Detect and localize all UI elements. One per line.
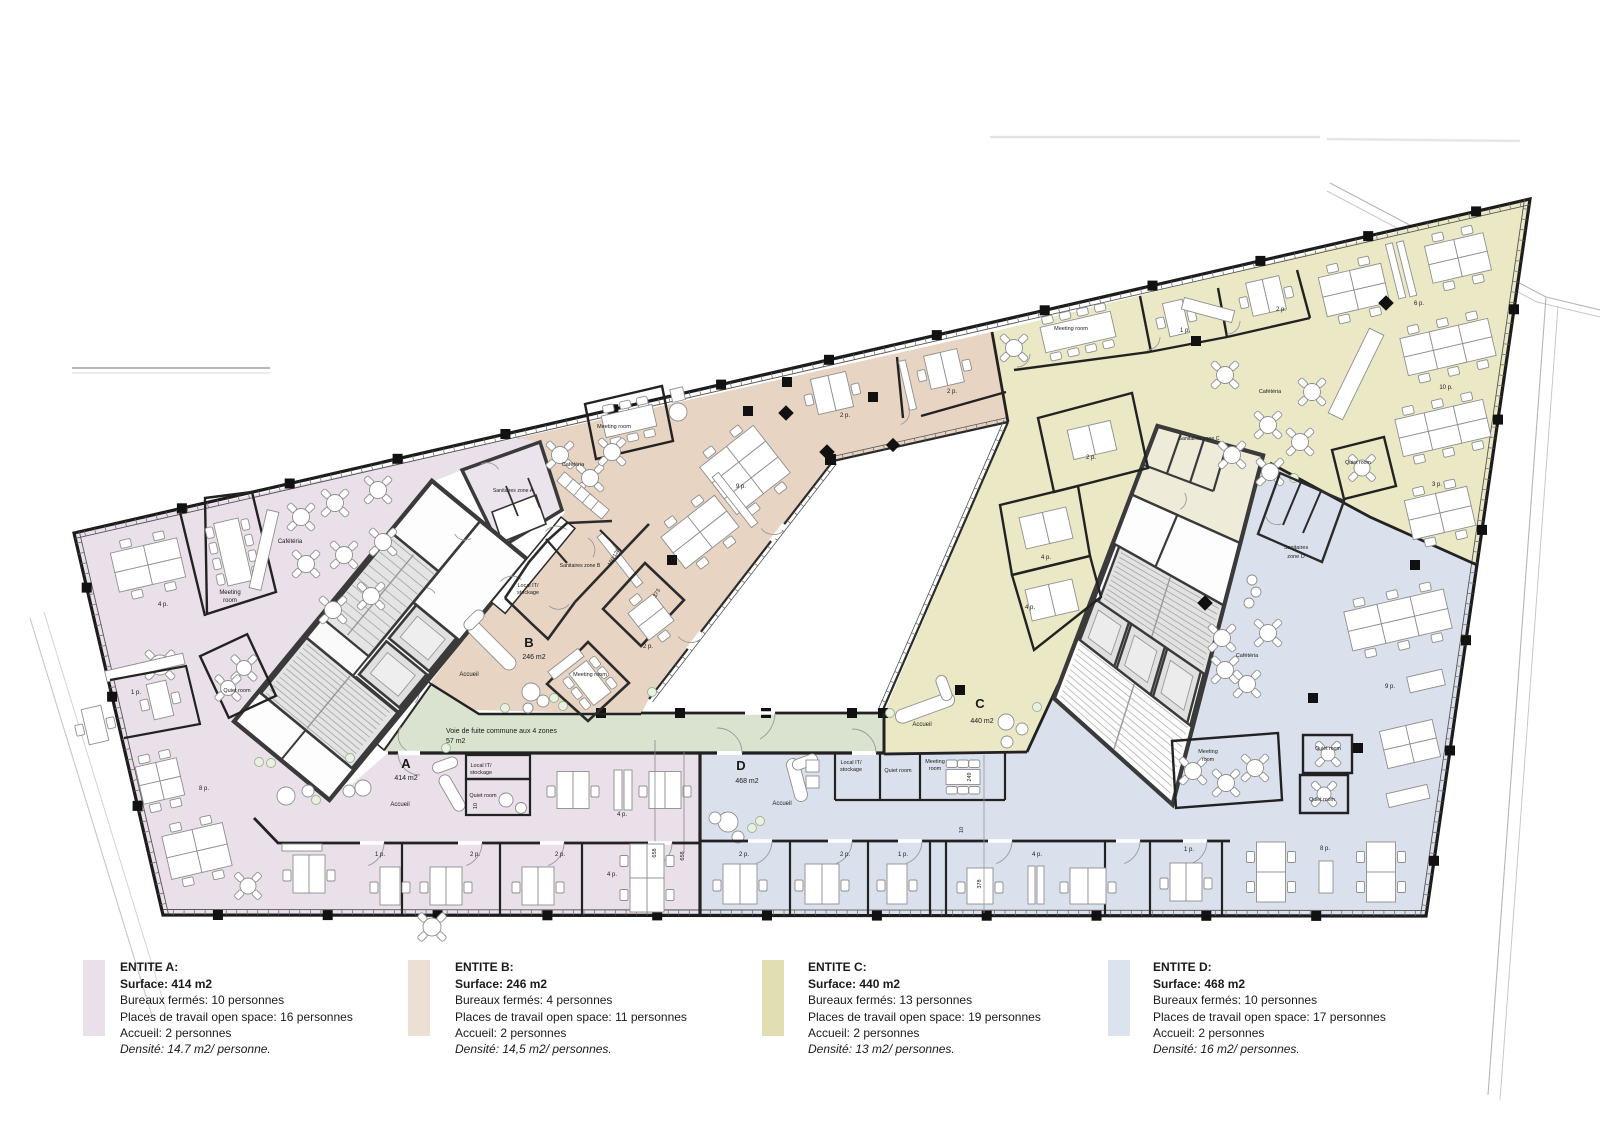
svg-text:1 p.: 1 p.	[131, 690, 141, 696]
svg-text:Places de travail open space:: Places de travail open space: 19 personn…	[808, 1010, 1041, 1024]
svg-text:Meeting room: Meeting room	[573, 672, 607, 678]
svg-text:4 p.: 4 p.	[607, 872, 617, 878]
svg-text:9 p.: 9 p.	[1385, 684, 1395, 690]
svg-text:Surface: 414 m2: Surface: 414 m2	[120, 977, 212, 991]
svg-text:Places de travail open space:: Places de travail open space: 11 personn…	[455, 1010, 687, 1024]
svg-text:Meeting room: Meeting room	[1054, 326, 1088, 332]
svg-text:Quiet room: Quiet room	[1345, 460, 1371, 466]
svg-text:Surface: 440 m2: Surface: 440 m2	[808, 977, 900, 991]
svg-text:4 p.: 4 p.	[158, 602, 168, 608]
svg-text:Accueil: Accueil	[390, 802, 409, 808]
svg-text:Accueil: 2 personnes: Accueil: 2 personnes	[808, 1026, 919, 1040]
svg-text:Voie de fuite commune aux 4 zo: Voie de fuite commune aux 4 zones	[446, 728, 557, 735]
svg-text:249: 249	[967, 772, 973, 781]
svg-text:57 m2: 57 m2	[446, 738, 466, 745]
svg-text:ENTITE C:: ENTITE C:	[808, 960, 867, 974]
svg-text:Quiet room: Quiet room	[223, 688, 251, 694]
svg-text:Meeting: Meeting	[925, 759, 945, 765]
svg-text:2 p.: 2 p.	[947, 389, 957, 395]
svg-text:658: 658	[680, 851, 686, 860]
svg-text:stockage: stockage	[470, 770, 492, 776]
svg-text:D: D	[736, 758, 745, 773]
svg-text:4 p.: 4 p.	[617, 812, 627, 818]
svg-text:4 p.: 4 p.	[1041, 555, 1051, 561]
svg-text:Local IT/: Local IT/	[517, 583, 539, 589]
svg-text:ENTITE B:: ENTITE B:	[455, 960, 514, 974]
svg-text:Surface: 246 m2: Surface: 246 m2	[455, 977, 547, 991]
svg-text:Sanitaires: Sanitaires	[1284, 545, 1309, 551]
svg-text:Meeting: Meeting	[1198, 749, 1218, 755]
svg-text:Densité: 14.7 m2/ personne.: Densité: 14.7 m2/ personne.	[120, 1042, 271, 1056]
svg-text:440 m2: 440 m2	[970, 718, 993, 725]
svg-text:9 p.: 9 p.	[736, 484, 746, 490]
svg-text:Accueil: 2 personnes: Accueil: 2 personnes	[120, 1026, 231, 1040]
svg-text:Accueil: Accueil	[912, 722, 931, 728]
svg-text:2 p.: 2 p.	[643, 644, 653, 650]
svg-text:2 p.: 2 p.	[1276, 307, 1286, 313]
svg-text:2 p.: 2 p.	[840, 852, 850, 858]
svg-text:4 p.: 4 p.	[1032, 852, 1042, 858]
svg-text:8 p.: 8 p.	[1320, 846, 1330, 852]
svg-text:Bureaux fermés: 10 personnes: Bureaux fermés: 10 personnes	[1153, 993, 1317, 1007]
svg-text:2 p.: 2 p.	[1086, 455, 1096, 461]
svg-text:Accueil: 2 personnes: Accueil: 2 personnes	[1153, 1026, 1264, 1040]
svg-text:ENTITE A:: ENTITE A:	[120, 960, 178, 974]
svg-text:Sanitaires zone A: Sanitaires zone A	[493, 488, 534, 494]
svg-text:Sanitaires zone B: Sanitaires zone B	[560, 563, 601, 569]
svg-text:2 p.: 2 p.	[840, 413, 850, 419]
svg-text:10: 10	[959, 827, 965, 833]
svg-text:Surface: 468 m2: Surface: 468 m2	[1153, 977, 1245, 991]
svg-text:zone D: zone D	[1287, 554, 1304, 560]
svg-text:Local IT/: Local IT/	[470, 763, 492, 769]
svg-text:246 m2: 246 m2	[522, 654, 545, 661]
svg-text:Cafétéria: Cafétéria	[1259, 389, 1282, 395]
svg-text:stockage: stockage	[840, 767, 862, 773]
svg-text:Local IT/: Local IT/	[840, 760, 862, 766]
svg-text:1 p.: 1 p.	[1184, 847, 1194, 853]
svg-text:Densité: 16 m2/ personnes.: Densité: 16 m2/ personnes.	[1153, 1042, 1300, 1056]
svg-text:414 m2: 414 m2	[394, 775, 417, 782]
svg-text:Cafétéria: Cafétéria	[562, 462, 585, 468]
svg-text:C: C	[975, 696, 985, 711]
svg-text:room: room	[1202, 757, 1215, 763]
svg-text:Cafétéria: Cafétéria	[1236, 653, 1259, 659]
svg-text:Bureaux fermés: 4 personnes: Bureaux fermés: 4 personnes	[455, 993, 612, 1007]
svg-text:Places de travail open space:: Places de travail open space: 17 personn…	[1153, 1010, 1386, 1024]
svg-text:378: 378	[977, 879, 983, 888]
svg-text:Densité: 14,5 m2/ personnes.: Densité: 14,5 m2/ personnes.	[455, 1042, 612, 1056]
svg-text:2 p.: 2 p.	[739, 852, 749, 858]
svg-text:Densité: 13 m2/ personnes.: Densité: 13 m2/ personnes.	[808, 1042, 955, 1056]
svg-text:Accueil: Accueil	[459, 672, 478, 678]
svg-text:Cafétéria: Cafétéria	[278, 539, 303, 545]
svg-text:Meeting: Meeting	[219, 590, 240, 596]
svg-text:1 p.: 1 p.	[898, 852, 908, 858]
svg-text:1 p.: 1 p.	[375, 852, 385, 858]
svg-text:2 p.: 2 p.	[555, 852, 565, 858]
svg-text:room: room	[929, 766, 942, 772]
svg-text:Quiet room: Quiet room	[884, 768, 912, 774]
svg-text:Bureaux fermés: 10 personnes: Bureaux fermés: 10 personnes	[120, 993, 284, 1007]
svg-text:4 p.: 4 p.	[1025, 605, 1035, 611]
svg-text:Sanitaires zone C: Sanitaires zone C	[1179, 436, 1220, 442]
svg-text:8 p.: 8 p.	[199, 786, 209, 792]
svg-text:468 m2: 468 m2	[735, 778, 758, 785]
svg-text:3 p.: 3 p.	[1432, 482, 1442, 488]
svg-text:658: 658	[652, 848, 658, 857]
svg-text:10: 10	[473, 803, 479, 809]
svg-text:room: room	[223, 598, 237, 604]
svg-text:ENTITE D:: ENTITE D:	[1153, 960, 1212, 974]
svg-text:6 p.: 6 p.	[1414, 301, 1424, 307]
svg-text:Quiet room: Quiet room	[1309, 797, 1335, 803]
svg-text:A: A	[401, 756, 411, 771]
svg-text:stockage: stockage	[517, 590, 539, 596]
svg-text:Bureaux fermés: 13 personnes: Bureaux fermés: 13 personnes	[808, 993, 972, 1007]
svg-text:10 p.: 10 p.	[1439, 385, 1453, 391]
svg-text:B: B	[524, 635, 533, 650]
svg-text:Quiet room: Quiet room	[1315, 746, 1341, 752]
svg-text:Meeting room: Meeting room	[597, 424, 631, 430]
svg-text:Places de travail open space:: Places de travail open space: 16 personn…	[120, 1010, 353, 1024]
svg-text:2 p.: 2 p.	[470, 852, 480, 858]
svg-text:Accueil: Accueil	[772, 801, 791, 807]
svg-text:Quiet room: Quiet room	[469, 793, 497, 799]
svg-text:1 p.: 1 p.	[1180, 328, 1190, 334]
svg-text:Accueil: 2 personnes: Accueil: 2 personnes	[455, 1026, 566, 1040]
